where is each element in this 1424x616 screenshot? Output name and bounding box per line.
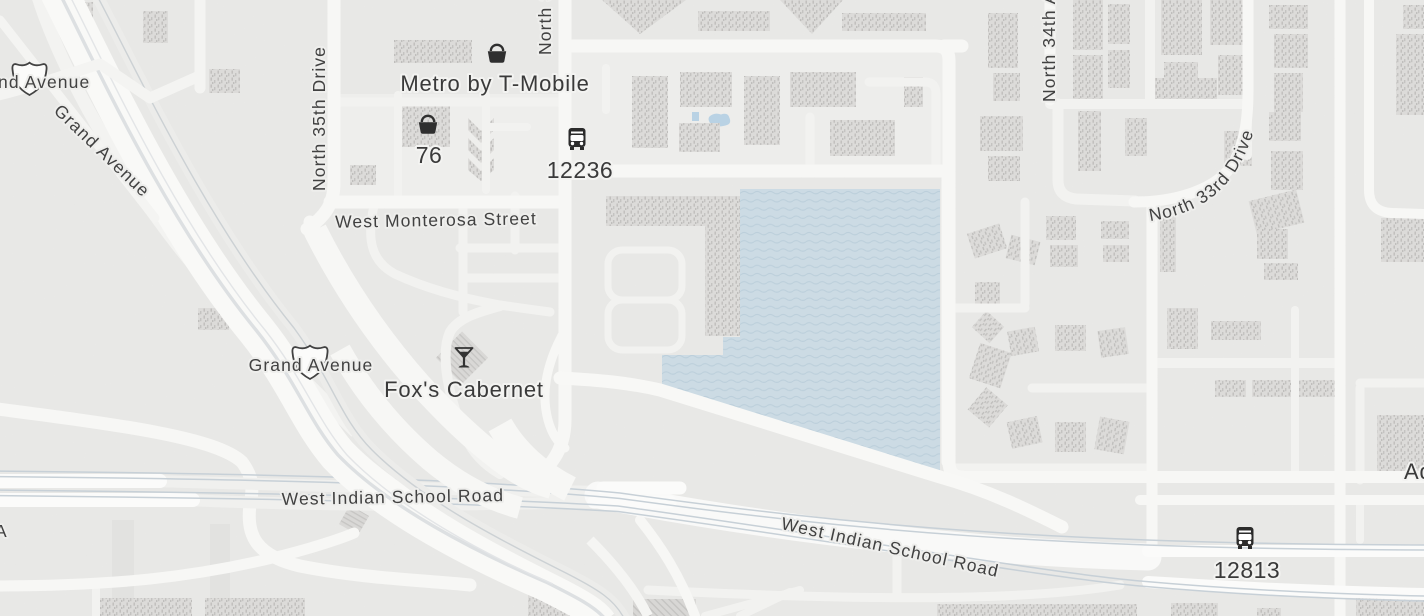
svg-text:North 35t: North 35t bbox=[535, 0, 555, 55]
svg-text:12813: 12813 bbox=[1214, 557, 1280, 583]
svg-text:nd Avenue: nd Avenue bbox=[0, 72, 90, 92]
svg-text:West Indian School Road: West Indian School Road bbox=[282, 485, 505, 509]
svg-text:Fox's Cabernet: Fox's Cabernet bbox=[384, 377, 544, 402]
svg-text:West Monterosa Street: West Monterosa Street bbox=[335, 208, 537, 232]
svg-text:A: A bbox=[0, 521, 8, 541]
svg-text:12236: 12236 bbox=[547, 157, 613, 183]
svg-text:Ad: Ad bbox=[1404, 459, 1424, 484]
svg-text:Grand Avenue: Grand Avenue bbox=[249, 355, 374, 375]
svg-text:North 34th A: North 34th A bbox=[1039, 0, 1059, 102]
svg-text:North 35th Drive: North 35th Drive bbox=[309, 46, 329, 191]
svg-text:76: 76 bbox=[416, 142, 443, 168]
svg-text:Metro by T-Mobile: Metro by T-Mobile bbox=[400, 71, 589, 96]
